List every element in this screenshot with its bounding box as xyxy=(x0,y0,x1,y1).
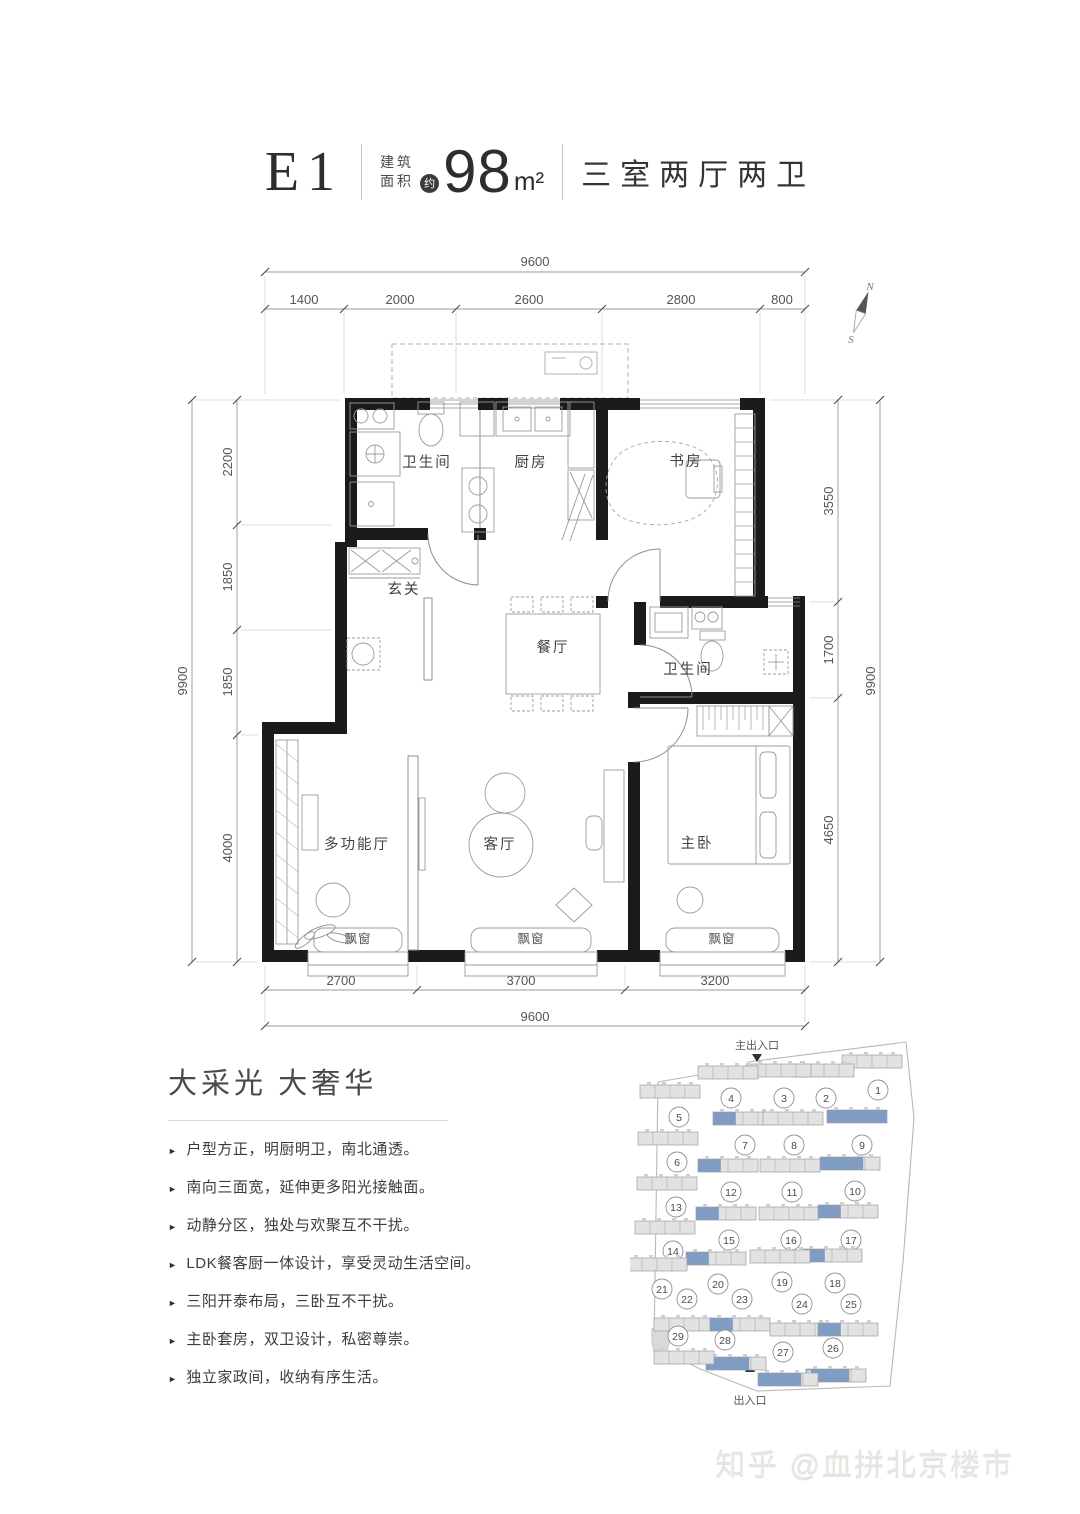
room-label-master: 主卧 xyxy=(681,835,714,852)
approx-badge: 约 xyxy=(420,174,439,193)
feature-bullet-text: 动静分区，独处与欢聚互不干扰。 xyxy=(186,1214,419,1235)
building-number-24: 24 xyxy=(796,1299,808,1311)
siteplan-building-12: 12 xyxy=(698,1156,758,1202)
siteplan-building-11: 11 xyxy=(760,1156,820,1202)
room-label-bay1: 飘窗 xyxy=(344,932,371,946)
feature-bullet-6: ►独立家政间，收纳有序生活。 xyxy=(168,1366,508,1387)
dim-bottom-total: 9600 xyxy=(521,1009,550,1024)
room-label-bath1: 卫生间 xyxy=(402,454,452,471)
room-label-living: 客厅 xyxy=(484,836,517,853)
feature-bullet-text: 户型方正，明厨明卫，南北通透。 xyxy=(186,1138,419,1159)
dim-right-seg-1: 1700 xyxy=(821,636,836,665)
walls xyxy=(262,398,805,962)
room-label-dining: 餐厅 xyxy=(537,639,570,656)
features-section: 大采光 大奢华 ►户型方正，明厨明卫，南北通透。►南向三面宽，延伸更多阳光接触面… xyxy=(168,1060,508,1404)
dimension-labels: 9600 1400 2000 2600 2800 800 9900 2200 1… xyxy=(175,254,878,1024)
building-number-16: 16 xyxy=(785,1235,797,1247)
building-number-11: 11 xyxy=(787,1187,798,1199)
feature-bullet-4: ►三阳开泰布局，三卧互不干扰。 xyxy=(168,1290,508,1311)
siteplan-building-17: 17 xyxy=(818,1202,878,1250)
siteplan-building-5: 5 xyxy=(640,1082,700,1127)
siteplan-main-entrance-label: 主出入口 xyxy=(735,1038,779,1052)
siteplan-buildings: 1234567891011121314151617181920212223242… xyxy=(630,1052,902,1386)
bullet-arrow-icon: ► xyxy=(168,1222,177,1232)
dim-top-seg-0: 1400 xyxy=(290,292,319,307)
bullet-arrow-icon: ► xyxy=(168,1374,177,1384)
siteplan-building-27: 27 xyxy=(758,1342,818,1386)
siteplan-building-28: 28 xyxy=(706,1330,766,1370)
building-number-19: 19 xyxy=(776,1277,788,1289)
siteplan-building-16: 16 xyxy=(759,1204,819,1250)
compass-icon: N S xyxy=(848,281,874,346)
building-number-5: 5 xyxy=(676,1112,682,1124)
building-number-3: 3 xyxy=(781,1093,787,1105)
siteplan-entrance-label: 出入口 xyxy=(734,1393,767,1407)
features-title: 大采光 大奢华 xyxy=(168,1060,508,1102)
building-number-6: 6 xyxy=(674,1157,680,1169)
room-label-multi: 多功能厅 xyxy=(324,836,390,853)
building-number-7: 7 xyxy=(742,1140,748,1152)
building-number-15: 15 xyxy=(723,1235,735,1247)
siteplan-building-20: 20 xyxy=(686,1249,746,1294)
area-label: 建筑 面积 xyxy=(380,153,414,191)
dim-top-total: 9600 xyxy=(521,254,550,269)
features-divider xyxy=(168,1120,448,1121)
room-label-foyer: 玄关 xyxy=(388,581,421,598)
building-number-20: 20 xyxy=(712,1279,724,1291)
building-number-1: 1 xyxy=(875,1085,881,1097)
siteplan-building-19: 19 xyxy=(750,1247,810,1292)
feature-bullet-1: ►南向三面宽，延伸更多阳光接触面。 xyxy=(168,1176,508,1197)
area-unit: m² xyxy=(514,166,544,197)
area-value: 98 xyxy=(443,142,512,202)
building-number-8: 8 xyxy=(791,1140,797,1152)
feature-bullet-5: ►主卧套房，双卫设计，私密尊崇。 xyxy=(168,1328,508,1349)
feature-bullet-text: 独立家政间，收纳有序生活。 xyxy=(186,1366,388,1387)
dim-top-seg-4: 800 xyxy=(771,292,793,307)
dim-right-seg-2: 4650 xyxy=(821,816,836,845)
building-number-29: 29 xyxy=(672,1331,684,1343)
title-divider-2 xyxy=(562,144,563,200)
building-number-18: 18 xyxy=(829,1278,841,1290)
feature-bullet-2: ►动静分区，独处与欢聚互不干扰。 xyxy=(168,1214,508,1235)
dim-left-seg-1: 1850 xyxy=(220,563,235,592)
balcony-outline xyxy=(392,344,628,398)
feature-bullet-3: ►LDK餐客厨一体设计，享受灵动生活空间。 xyxy=(168,1252,508,1273)
siteplan-building-18: 18 xyxy=(802,1246,862,1293)
siteplan-building-6: 6 xyxy=(638,1129,698,1172)
feature-bullet-text: 三阳开泰布局，三卧互不干扰。 xyxy=(186,1290,403,1311)
building-number-27: 27 xyxy=(777,1347,789,1359)
dim-left-seg-3: 4000 xyxy=(220,834,235,863)
siteplan-building-23: 23 xyxy=(710,1289,770,1331)
siteplan-building-21: 21 xyxy=(630,1255,687,1299)
feature-bullet-text: LDK餐客厨一体设计，享受灵动生活空间。 xyxy=(186,1252,480,1273)
dim-top-seg-1: 2000 xyxy=(386,292,415,307)
building-number-13: 13 xyxy=(670,1202,682,1214)
building-number-21: 21 xyxy=(656,1284,668,1296)
building-number-22: 22 xyxy=(681,1294,693,1306)
siteplan-building-9: 9 xyxy=(827,1107,887,1155)
siteplan-building-25: 25 xyxy=(818,1294,878,1336)
area-label-line2: 面积 xyxy=(380,172,414,191)
building-number-10: 10 xyxy=(849,1186,861,1198)
building-number-12: 12 xyxy=(725,1187,737,1199)
dim-left-seg-0: 2200 xyxy=(220,448,235,477)
bullet-arrow-icon: ► xyxy=(168,1298,177,1308)
bullet-arrow-icon: ► xyxy=(168,1184,177,1194)
floorplan-page: E1 建筑 面积 约 98 m² 三室两厅两卫 xyxy=(0,0,1080,1514)
compass-north: N xyxy=(865,281,874,293)
siteplan-building-3: 3 xyxy=(751,1061,811,1108)
bullet-arrow-icon: ► xyxy=(168,1146,177,1156)
room-label-bay3: 飘窗 xyxy=(708,932,735,946)
dim-right-total: 9900 xyxy=(863,667,878,696)
title-block: E1 建筑 面积 约 98 m² 三室两厅两卫 xyxy=(0,142,1080,202)
siteplan-building-13: 13 xyxy=(637,1174,697,1217)
feature-bullet-text: 南向三面宽，延伸更多阳光接触面。 xyxy=(186,1176,434,1197)
dim-top-seg-2: 2600 xyxy=(515,292,544,307)
dim-left-total: 9900 xyxy=(175,667,190,696)
building-number-28: 28 xyxy=(719,1335,731,1347)
dim-top-seg-3: 2800 xyxy=(667,292,696,307)
area-label-line1: 建筑 xyxy=(380,153,414,172)
unit-name: E1 xyxy=(265,144,343,200)
site-plan: 主出入口 出入口 1234567891011121314151617181920… xyxy=(630,1030,930,1410)
watermark: 知乎 @血拼北京楼市 xyxy=(715,1441,1014,1485)
floor-plan: 9600 1400 2000 2600 2800 800 9900 2200 1… xyxy=(150,240,930,1040)
dim-right-seg-0: 3550 xyxy=(821,487,836,516)
siteplan-building-8: 8 xyxy=(763,1109,823,1155)
building-number-26: 26 xyxy=(827,1343,839,1355)
room-label-bay2: 飘窗 xyxy=(517,932,544,946)
layout-text: 三室两厅两卫 xyxy=(581,150,815,194)
building-number-17: 17 xyxy=(845,1235,857,1247)
room-label-kitchen: 厨房 xyxy=(515,454,548,471)
bullet-arrow-icon: ► xyxy=(168,1336,177,1346)
title-divider xyxy=(361,144,362,200)
siteplan-building-15: 15 xyxy=(696,1204,756,1250)
room-label-study: 书房 xyxy=(670,453,703,470)
building-number-9: 9 xyxy=(859,1140,865,1152)
building-number-23: 23 xyxy=(736,1294,748,1306)
features-list: ►户型方正，明厨明卫，南北通透。►南向三面宽，延伸更多阳光接触面。►动静分区，独… xyxy=(168,1138,508,1387)
feature-bullet-text: 主卧套房，双卫设计，私密尊崇。 xyxy=(186,1328,419,1349)
bullet-arrow-icon: ► xyxy=(168,1260,177,1270)
building-number-2: 2 xyxy=(823,1093,829,1105)
building-number-25: 25 xyxy=(845,1299,857,1311)
room-label-bath2: 卫生间 xyxy=(663,661,713,678)
feature-bullet-0: ►户型方正，明厨明卫，南北通透。 xyxy=(168,1138,508,1159)
dim-left-seg-2: 1850 xyxy=(220,668,235,697)
siteplan-building-10: 10 xyxy=(820,1154,880,1201)
building-number-4: 4 xyxy=(728,1093,734,1105)
compass-south: S xyxy=(848,334,854,346)
siteplan-building-4: 4 xyxy=(698,1063,758,1108)
